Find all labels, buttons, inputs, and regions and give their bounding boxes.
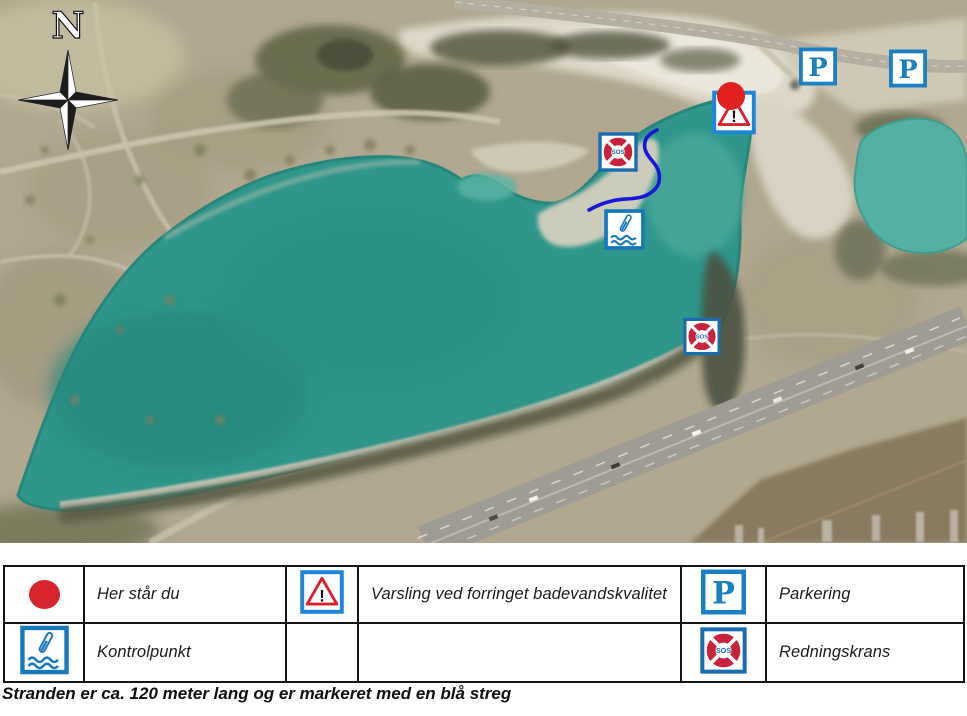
- svg-text:P: P: [712, 575, 735, 611]
- legend-kontrolpunkt-cell: [4, 623, 84, 682]
- legend-warning-cell: !: [286, 566, 358, 623]
- lifebuoy-icon: SOS: [683, 317, 721, 356]
- lifebuoy-icon: SOS: [700, 627, 747, 674]
- legend-you-are-here-cell: [4, 566, 84, 623]
- north-label: N: [52, 5, 85, 47]
- you-are-here-dot-icon: [29, 580, 60, 609]
- parking-sign-1: P: [799, 47, 837, 86]
- legend-you-are-here-label: Her står du: [84, 566, 286, 623]
- svg-text:SOS: SOS: [611, 149, 624, 156]
- parking-icon: P: [799, 47, 837, 86]
- legend-redningskrans-label: Redningskrans: [766, 623, 964, 682]
- legend-kontrolpunkt-label: Kontrolpunkt: [84, 623, 286, 682]
- legend-parking-label: Parkering: [766, 566, 964, 623]
- control-point-icon: [20, 625, 69, 675]
- lifebuoy-icon: SOS: [598, 132, 638, 172]
- compass-star: [18, 50, 118, 150]
- parking-icon: P: [701, 569, 746, 615]
- svg-text:!: !: [731, 108, 737, 126]
- warning-triangle-icon: !: [300, 570, 344, 614]
- svg-text:P: P: [808, 53, 827, 83]
- legend-redningskrans-cell: SOS: [681, 623, 766, 682]
- legend-warning-label: Varsling ved forringet badevandskvalitet: [358, 566, 681, 623]
- svg-text:!: !: [319, 587, 325, 605]
- lifebuoy-sign-2: SOS: [683, 317, 721, 356]
- legend-table: Her står du ! Varsling ved forringet bad…: [3, 565, 965, 683]
- parking-sign-2: P: [889, 49, 927, 88]
- you-are-here-dot: [717, 82, 745, 110]
- legend-empty-icon-cell: [286, 623, 358, 682]
- legend-row-2: Kontrolpunkt SOS Redningskrans: [4, 623, 964, 682]
- svg-text:P: P: [898, 55, 917, 85]
- parking-icon: P: [889, 49, 927, 88]
- svg-text:SOS: SOS: [696, 335, 708, 341]
- lifebuoy-sign-1: SOS: [598, 132, 638, 172]
- legend-empty-label-cell: [358, 623, 681, 682]
- compass-rose: N: [16, 4, 121, 152]
- svg-text:SOS: SOS: [716, 646, 731, 655]
- beach-info-sheet: N SOS: [0, 0, 967, 716]
- legend-row-1: Her står du ! Varsling ved forringet bad…: [4, 566, 964, 623]
- control-point-icon: [604, 209, 645, 250]
- legend-parking-cell: P: [681, 566, 766, 623]
- aerial-map: N SOS: [0, 0, 967, 543]
- map-caption: Stranden er ca. 120 meter lang og er mar…: [2, 684, 511, 704]
- kontrolpunkt-sign-map: [604, 209, 645, 250]
